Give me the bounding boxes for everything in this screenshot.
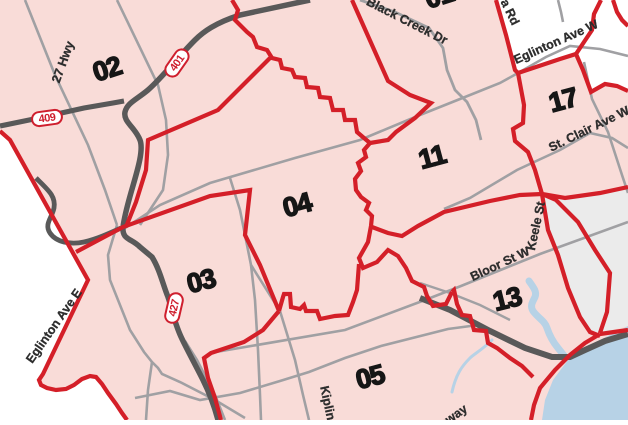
svg-text:409: 409 xyxy=(38,111,57,125)
